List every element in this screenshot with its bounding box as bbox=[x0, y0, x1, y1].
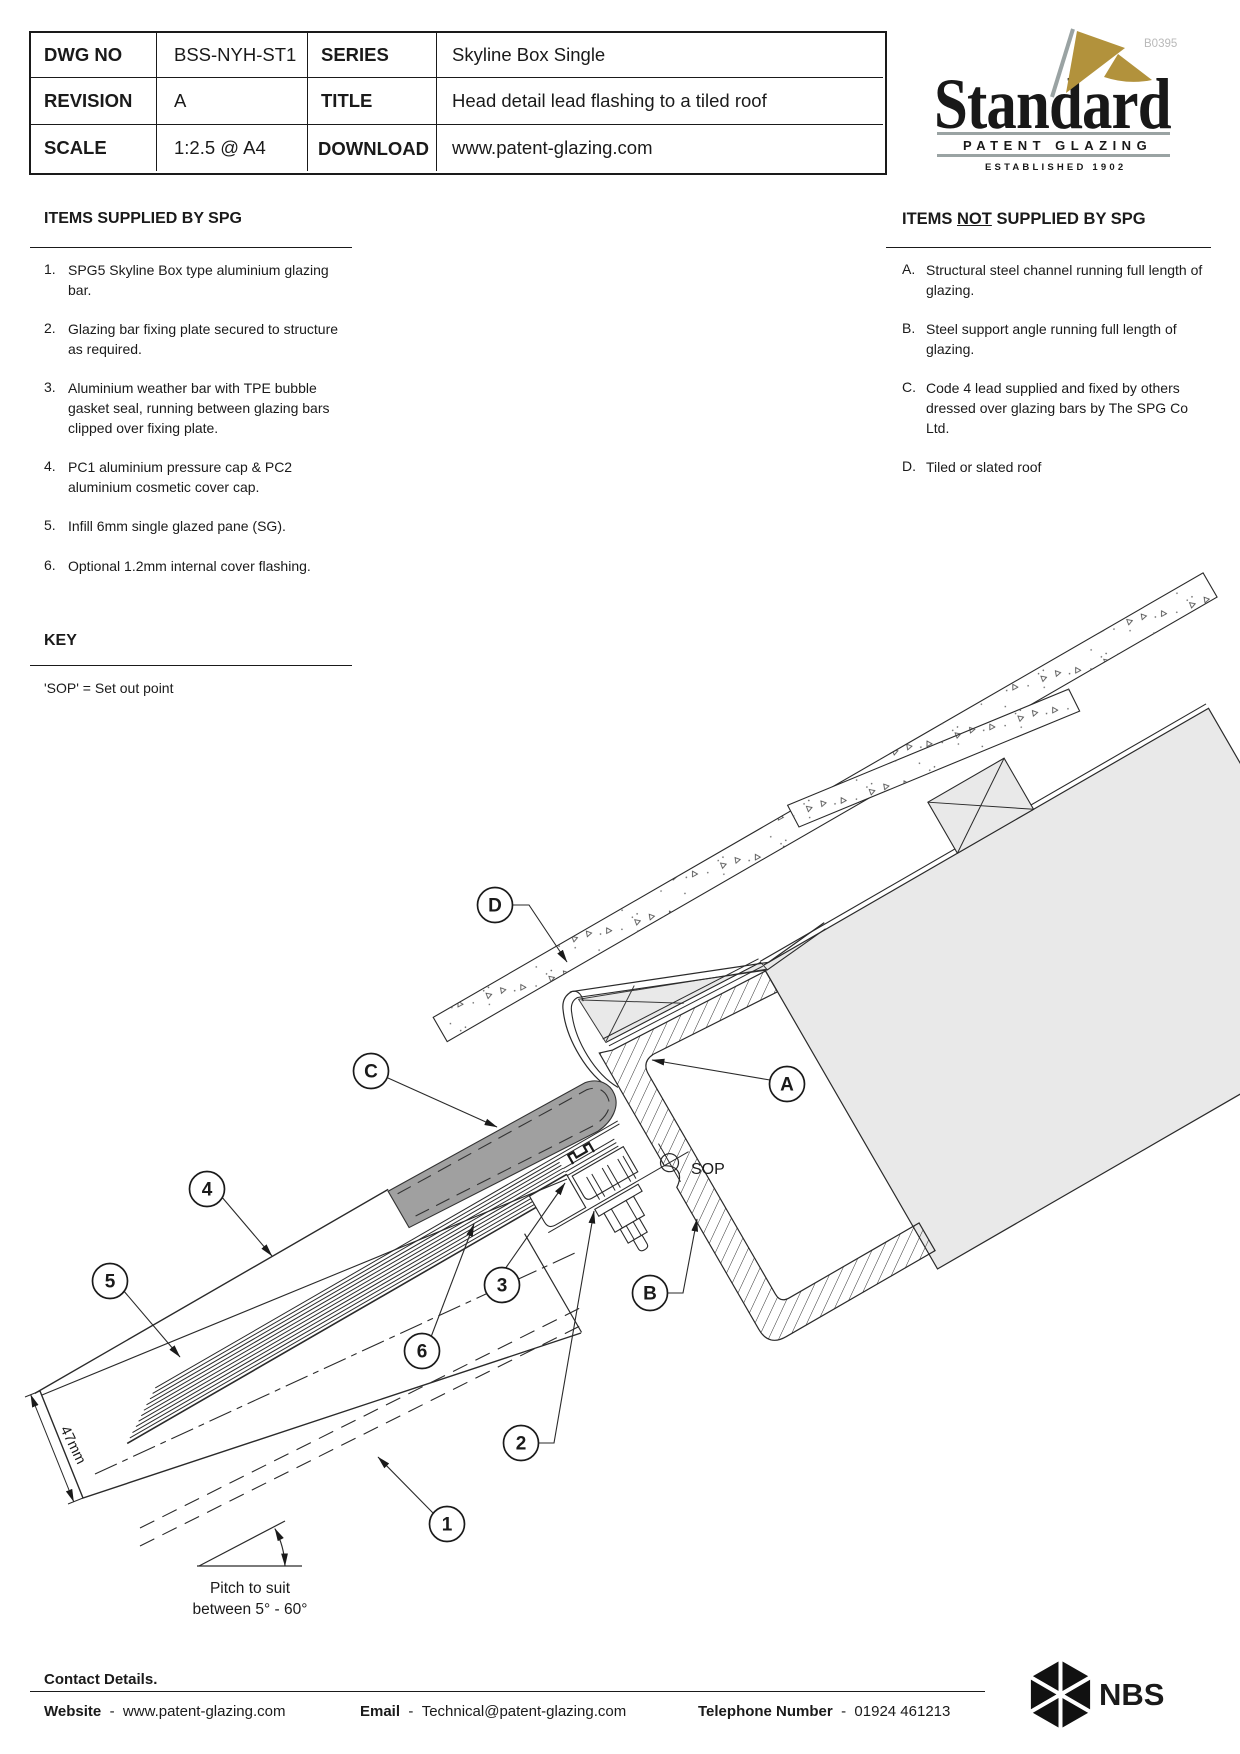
svg-text:6: 6 bbox=[417, 1342, 428, 1363]
svg-text:SOP: SOP bbox=[691, 1161, 725, 1178]
svg-text:A: A bbox=[780, 1075, 794, 1096]
svg-text:D: D bbox=[488, 896, 502, 917]
svg-text:4: 4 bbox=[202, 1180, 213, 1201]
svg-text:B: B bbox=[643, 1284, 657, 1305]
svg-text:2: 2 bbox=[516, 1434, 527, 1455]
svg-text:between 5° - 60°: between 5° - 60° bbox=[193, 1601, 308, 1618]
svg-text:1: 1 bbox=[442, 1515, 453, 1536]
svg-text:Pitch to suit: Pitch to suit bbox=[210, 1580, 291, 1597]
svg-text:C: C bbox=[364, 1062, 378, 1083]
svg-text:3: 3 bbox=[497, 1276, 508, 1297]
svg-text:5: 5 bbox=[105, 1272, 116, 1293]
